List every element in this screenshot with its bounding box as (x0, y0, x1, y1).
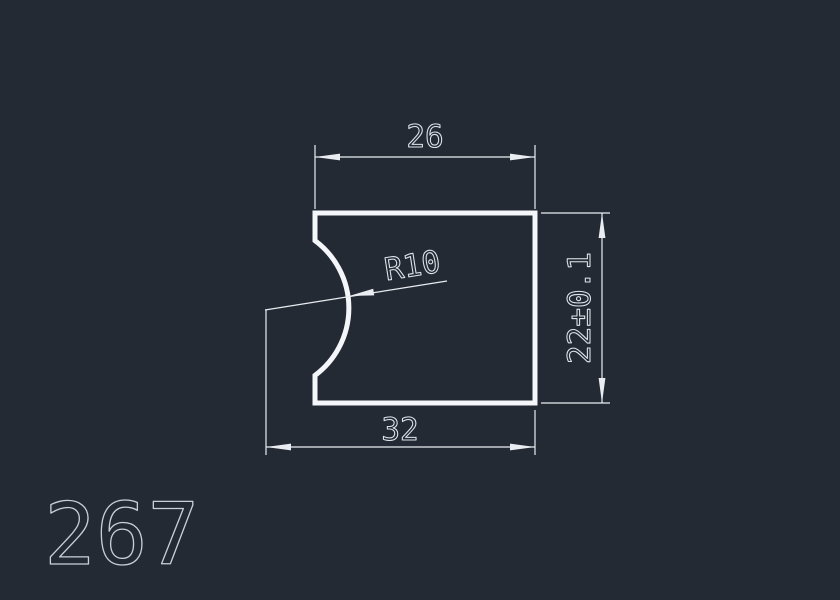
dimension-bottom-width-value: 32 (381, 412, 418, 448)
cad-drawing-viewport: 26 22±0.1 32 R10 267 (0, 0, 840, 600)
drawing-number: 267 (44, 485, 199, 585)
dimension-height-value: 22±0.1 (562, 252, 598, 364)
cad-drawing-canvas: 26 22±0.1 32 R10 267 (0, 0, 840, 600)
dimension-top-width-value: 26 (406, 119, 443, 155)
